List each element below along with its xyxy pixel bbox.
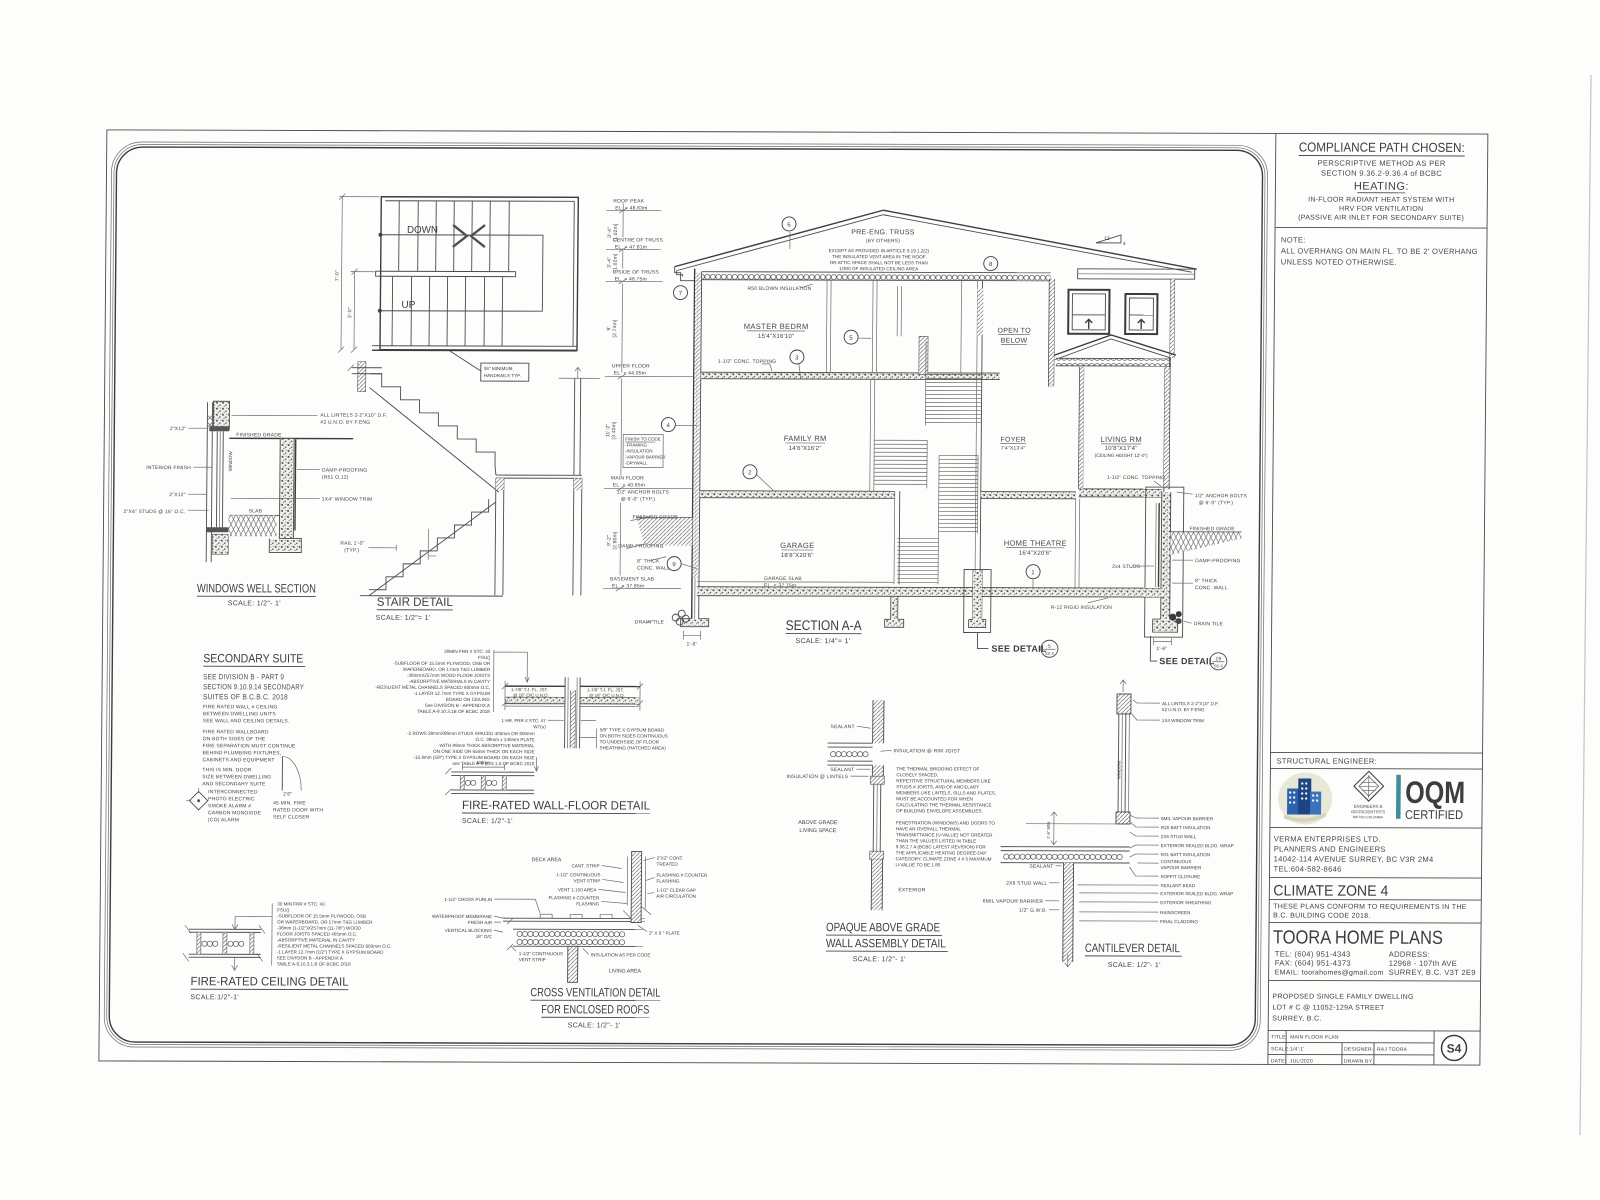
- svg-text:SEALANT: SEALANT: [830, 767, 854, 773]
- svg-text:IN-FLOOR RADIANT HEAT SYSTEM W: IN-FLOOR RADIANT HEAT SYSTEM WITH: [1308, 197, 1454, 204]
- svg-text:WALL ASSEMBLY DETAIL: WALL ASSEMBLY DETAIL: [826, 936, 946, 950]
- svg-text:ALL LINTELS 2-2"X10" D.F.: ALL LINTELS 2-2"X10" D.F.: [320, 413, 387, 419]
- svg-text:DAMP-PROOFING: DAMP-PROOFING: [618, 543, 663, 549]
- svg-text:TRANSMITTANCE (U-VALUE) NOT GR: TRANSMITTANCE (U-VALUE) NOT GREATER: [896, 832, 993, 837]
- svg-text:9.36.2.7 A (BCBC LATEST REVISI: 9.36.2.7 A (BCBC LATEST REVISION) FOR: [896, 844, 987, 849]
- svg-text:INTERCONNECTED: INTERCONNECTED: [208, 789, 258, 795]
- svg-text:5: 5: [849, 336, 853, 342]
- svg-text:FLASHING # COUNTER: FLASHING # COUNTER: [656, 873, 708, 878]
- svg-text:VENT STRIP: VENT STRIP: [519, 957, 546, 962]
- svg-text:LIVING AREA: LIVING AREA: [609, 968, 642, 974]
- svg-text:@ 16" O/C U.N.O.: @ 16" O/C U.N.O.: [589, 693, 625, 698]
- svg-text:PHOTO ELECTRIC: PHOTO ELECTRIC: [208, 796, 255, 802]
- svg-text:-1 LAYER 12.7mm TYPE X GYPSUM: -1 LAYER 12.7mm TYPE X GYPSUM: [413, 691, 490, 696]
- svg-text:18" O/C: 18" O/C: [476, 934, 493, 939]
- svg-text:DESIGNER:: DESIGNER:: [1344, 1047, 1373, 1053]
- svg-text:STRUCTURAL ENGINEER:: STRUCTURAL ENGINEER:: [1276, 756, 1377, 765]
- svg-text:SURREY, B.C.: SURREY, B.C.: [1272, 1015, 1321, 1022]
- svg-text:PROPOSED SINGLE FAMILY DWELLIN: PROPOSED SINGLE FAMILY DWELLING: [1272, 993, 1413, 1000]
- svg-text:ON ONE SIDE OR 65mm THICK ON E: ON ONE SIDE OR 65mm THICK ON EACH SIDE: [433, 749, 535, 754]
- svg-text:EL. = 44.05m: EL. = 44.05m: [614, 370, 646, 376]
- svg-text:INSULATION AS PER CODE: INSULATION AS PER CODE: [591, 952, 651, 957]
- svg-text:THE INSULATED VENT AREA IN THE: THE INSULATED VENT AREA IN THE ROOF: [832, 254, 926, 259]
- svg-text:16'4"X20'6": 16'4"X20'6": [1019, 551, 1052, 557]
- svg-text:THE THERMAL BRIDGING EFFECT OF: THE THERMAL BRIDGING EFFECT OF: [896, 766, 979, 771]
- svg-text:FIRE SEPARATION MUST CONTINUE: FIRE SEPARATION MUST CONTINUE: [203, 743, 297, 749]
- svg-text:OQM: OQM: [1405, 775, 1465, 810]
- svg-text:[3.40m]: [3.40m]: [611, 421, 617, 440]
- svg-text:DRAIN TILE: DRAIN TILE: [1194, 621, 1224, 627]
- svg-text:1'-6" MIN.: 1'-6" MIN.: [1046, 821, 1051, 839]
- svg-text:FIRE-RATED CEILING DETAIL: FIRE-RATED CEILING DETAIL: [190, 974, 348, 988]
- svg-text:2: 2: [748, 470, 752, 476]
- svg-text:FINISHED GRADE: FINISHED GRADE: [633, 515, 679, 521]
- svg-text:CALCULATING THE THERMAL RESIST: CALCULATING THE THERMAL RESISTANCE: [896, 802, 992, 807]
- svg-text:O.C. 38mm x 140mm PLATE: O.C. 38mm x 140mm PLATE: [475, 737, 534, 742]
- svg-text:COMPLIANCE PATH CHOSEN:: COMPLIANCE PATH CHOSEN:: [1299, 139, 1465, 154]
- svg-text:ENGINEERS &: ENGINEERS &: [1354, 804, 1383, 809]
- svg-text:-VAPOUR BARRIER: -VAPOUR BARRIER: [625, 454, 665, 459]
- svg-text:CANT. STRIP: CANT. STRIP: [571, 863, 599, 868]
- svg-text:DOWN: DOWN: [407, 225, 438, 236]
- svg-text:SD-3: SD-3: [1214, 664, 1223, 668]
- svg-text:MEMBERS LIKE LINTELS, SILLS AN: MEMBERS LIKE LINTELS, SILLS AND PLATES,: [896, 790, 996, 795]
- svg-text:SCALE:1/2"-1': SCALE:1/2"-1': [190, 994, 239, 1001]
- svg-text:1-1/2" CONC. TOPPING: 1-1/2" CONC. TOPPING: [1107, 475, 1165, 481]
- svg-text:FINISHED GRADE: FINISHED GRADE: [236, 432, 282, 438]
- svg-text:-INSULATION: -INSULATION: [625, 448, 653, 453]
- svg-text:[2.74m]: [2.74m]: [612, 319, 618, 338]
- svg-text:REPETITIVE STRUCTURAL MEMBERS: REPETITIVE STRUCTURAL MEMBERS LIKE: [896, 778, 991, 783]
- svg-text:DRAIN TILE: DRAIN TILE: [635, 620, 665, 626]
- svg-text:FINISH TO CODE: FINISH TO CODE: [625, 436, 661, 441]
- svg-text:THAN THE VALUES LISTED IN TABL: THAN THE VALUES LISTED IN TABLE: [896, 838, 977, 843]
- svg-text:1/2" ANCHOR BOLTS: 1/2" ANCHOR BOLTS: [1195, 493, 1248, 499]
- svg-text:-FRAMING: -FRAMING: [625, 442, 647, 447]
- svg-text:30MIN FRR # STC: 43: 30MIN FRR # STC: 43: [444, 649, 491, 654]
- svg-text:RAIL 1'-0": RAIL 1'-0": [340, 541, 364, 547]
- svg-text:EXTERIOR SEALED BLDG. WRAP: EXTERIOR SEALED BLDG. WRAP: [1160, 891, 1233, 896]
- svg-text:HRV FOR VENTILATION: HRV FOR VENTILATION: [1339, 206, 1423, 213]
- svg-text:3'-0": 3'-0": [347, 307, 353, 318]
- svg-text:MAIN FLOOR: MAIN FLOOR: [611, 475, 644, 481]
- svg-text:EXCEPT AS PROVIDED IN ARTICLE: EXCEPT AS PROVIDED IN ARTICLE 9.19.1.2(2…: [829, 248, 930, 253]
- svg-text:ALL OVERHANG ON MAIN FL. TO BE: ALL OVERHANG ON MAIN FL. TO BE 2' OVERHA…: [1281, 246, 1478, 256]
- svg-text:12968 - 107th AVE: 12968 - 107th AVE: [1389, 959, 1457, 968]
- svg-text:TITLE:: TITLE:: [1271, 1034, 1287, 1040]
- svg-text:[2.80m]: [2.80m]: [612, 531, 618, 550]
- svg-text:TABLE A-9.10.3.1B OF BCBC 2018: TABLE A-9.10.3.1B OF BCBC 2018: [417, 709, 490, 714]
- svg-text:CENTRE OF TRUSS: CENTRE OF TRUSS: [613, 237, 664, 243]
- svg-text:DRAWN BY: DRAWN BY: [1344, 1059, 1373, 1065]
- svg-text:5: 5: [1048, 644, 1051, 650]
- svg-text:BETWEEN DWELLING UNITS: BETWEEN DWELLING UNITS: [203, 711, 277, 717]
- svg-text:[1.02m]: [1.02m]: [613, 223, 619, 242]
- svg-text:FINISHED GRADE: FINISHED GRADE: [1189, 526, 1235, 532]
- svg-text:CROSS VENTILATION DETAIL: CROSS VENTILATION DETAIL: [530, 985, 660, 999]
- svg-text:-1 LAYER 12.7mm (1/2") TYPE X: -1 LAYER 12.7mm (1/2") TYPE X GYPSUM BOA…: [277, 949, 384, 954]
- svg-text:6MIL VAPOUR BARRIER: 6MIL VAPOUR BARRIER: [1161, 816, 1214, 821]
- svg-text:STAIR DETAIL: STAIR DETAIL: [377, 595, 453, 609]
- svg-text:400mm: 400mm: [476, 760, 491, 765]
- svg-text:8" THICK: 8" THICK: [1195, 578, 1218, 584]
- svg-text:FRESH AIR: FRESH AIR: [468, 920, 493, 925]
- svg-text:FOYER: FOYER: [1000, 437, 1026, 444]
- svg-text:@ 6'-0" (TYP.): @ 6'-0" (TYP.): [1199, 500, 1234, 506]
- svg-text:12: 12: [1104, 236, 1110, 242]
- svg-text:-38mmX257mm WOOD FLOOR JOISTS: -38mmX257mm WOOD FLOOR JOISTS: [407, 673, 490, 678]
- svg-text:SEE DIVISION B - APPENDIX A: SEE DIVISION B - APPENDIX A: [277, 955, 344, 960]
- svg-text:8" THICK: 8" THICK: [637, 559, 660, 565]
- svg-text:1-1/2" CLEAR GAP: 1-1/2" CLEAR GAP: [656, 888, 696, 893]
- svg-text:36" MINIMUM: 36" MINIMUM: [484, 366, 513, 371]
- svg-text:INSULATION @ LINTELS: INSULATION @ LINTELS: [787, 774, 849, 780]
- svg-text:LIVING RM: LIVING RM: [1100, 435, 1142, 444]
- svg-text:18'8"X20'6": 18'8"X20'6": [781, 553, 814, 559]
- svg-text:SEE WALL AND CEILING DETAILS.: SEE WALL AND CEILING DETAILS.: [203, 718, 290, 724]
- svg-text:HOME THEATRE: HOME THEATRE: [1004, 539, 1067, 548]
- svg-text:2"X2" CONT.: 2"X2" CONT.: [657, 856, 684, 861]
- svg-text:FLASHING: FLASHING: [656, 879, 679, 884]
- svg-text:SCALE: 1/4"= 1': SCALE: 1/4"= 1': [795, 638, 850, 645]
- svg-text:PERSCRIPTIVE METHOD AS PER: PERSCRIPTIVE METHOD AS PER: [1318, 159, 1446, 168]
- svg-text:ROOF PEAK: ROOF PEAK: [613, 198, 644, 204]
- svg-text:CARBON MONOXIDE: CARBON MONOXIDE: [208, 810, 262, 816]
- svg-text:MASTER BEDRM: MASTER BEDRM: [744, 322, 809, 331]
- svg-text:(R51 O.12): (R51 O.12): [322, 475, 349, 481]
- svg-text:@ 16" O/C U.N.O.: @ 16" O/C U.N.O.: [513, 693, 549, 698]
- svg-text:7'-0": 7'-0": [335, 270, 341, 281]
- svg-text:CONTINUOUS: CONTINUOUS: [1161, 859, 1192, 864]
- svg-text:AND SECONDARY SUITE: AND SECONDARY SUITE: [202, 781, 266, 787]
- svg-text:CATEGORY. CLIMATE ZONE 4 # 5 M: CATEGORY. CLIMATE ZONE 4 # 5 MAXIMUM: [896, 856, 992, 861]
- svg-text:SIZE BETWEEN DWELLING: SIZE BETWEEN DWELLING: [202, 774, 271, 780]
- svg-text:SEALANT: SEALANT: [831, 724, 855, 730]
- svg-text:TEL: (604) 951-4343: TEL: (604) 951-4343: [1275, 949, 1351, 958]
- svg-text:U-VALUE TO BE 1.80: U-VALUE TO BE 1.80: [896, 862, 941, 867]
- svg-text:2'6": 2'6": [283, 791, 292, 797]
- svg-text:OR WAFERBOARD, OR 17mm T&G LUM: OR WAFERBOARD, OR 17mm T&G LUMBER: [277, 919, 373, 924]
- svg-text:CONC. WALL: CONC. WALL: [637, 566, 670, 572]
- svg-text:WAFERBOARD, OR 17mm T&G LUMBER: WAFERBOARD, OR 17mm T&G LUMBER: [403, 667, 491, 672]
- svg-text:SD-3: SD-3: [1045, 652, 1054, 656]
- svg-text:TREATED: TREATED: [657, 862, 679, 867]
- svg-text:SMOKE ALARM #: SMOKE ALARM #: [208, 803, 251, 809]
- svg-text:1-7/8" T.J. FL. JST.: 1-7/8" T.J. FL. JST.: [587, 687, 624, 692]
- svg-text:(BY OTHERS): (BY OTHERS): [866, 238, 901, 244]
- svg-text:FLASHING # COUNTER: FLASHING # COUNTER: [548, 895, 600, 900]
- svg-text:VENT 1:150 AREA: VENT 1:150 AREA: [558, 887, 597, 892]
- svg-text:OR ATTIC SPACE SHALL NOT BE LE: OR ATTIC SPACE SHALL NOT BE LESS THAN: [830, 260, 928, 265]
- svg-text:-2 ROWS 38mmX89mm STUDS SPACED: -2 ROWS 38mmX89mm STUDS SPACED 400mm OR …: [407, 731, 535, 736]
- svg-text:SEALANT BEAD: SEALANT BEAD: [1160, 883, 1195, 888]
- svg-text:SOFFIT CLOSURE: SOFFIT CLOSURE: [1160, 874, 1200, 879]
- svg-text:-SUBFLOOR OF 15.5mm PLYWOOD, O: -SUBFLOOR OF 15.5mm PLYWOOD, OSB: [277, 913, 366, 918]
- svg-text:JUL/2020: JUL/2020: [1290, 1058, 1313, 1064]
- svg-text:CABINETS AND EQUIPMENT: CABINETS AND EQUIPMENT: [202, 757, 274, 763]
- svg-text:5/8" TYPE X GYPSUM BOARD: 5/8" TYPE X GYPSUM BOARD: [600, 727, 665, 732]
- svg-text:2X6 STUD WALL: 2X6 STUD WALL: [1161, 834, 1197, 839]
- svg-text:SCALE: 1/2"- 1': SCALE: 1/2"- 1': [1108, 962, 1161, 969]
- svg-text:AIR CIRCULATION: AIR CIRCULATION: [656, 894, 696, 899]
- svg-text:SLAB: SLAB: [249, 508, 263, 514]
- svg-text:FLOOR JOISTS SPACED 405mm O.C.: FLOOR JOISTS SPACED 405mm O.C.: [277, 931, 357, 936]
- svg-text:GARAGE SLAB: GARAGE SLAB: [764, 576, 802, 582]
- svg-text:8: 8: [989, 262, 993, 268]
- svg-text:THESE PLANS CONFORM TO REQUIRE: THESE PLANS CONFORM TO REQUIREMENTS IN T…: [1273, 903, 1467, 911]
- svg-text:THE APPLICABLE HEATING DEGREE-: THE APPLICABLE HEATING DEGREE-DAY: [896, 850, 987, 855]
- svg-text:2x4 STUDS: 2x4 STUDS: [1112, 564, 1141, 570]
- svg-text:FIRE-RATED WALL-FLOOR DETAIL: FIRE-RATED WALL-FLOOR DETAIL: [462, 798, 650, 813]
- svg-text:14'6"X16'2": 14'6"X16'2": [789, 446, 822, 452]
- svg-text:FSU(): FSU(): [277, 907, 290, 912]
- svg-text:(CEILING HEIGHT 12'-0"): (CEILING HEIGHT 12'-0"): [1095, 453, 1148, 458]
- svg-text:4: 4: [1123, 241, 1126, 247]
- svg-text:-DRYWALL: -DRYWALL: [625, 460, 648, 465]
- svg-text:B.C. BUILDING CODE 2018.: B.C. BUILDING CODE 2018.: [1273, 912, 1371, 919]
- svg-text:STUDS # JOISTS, AND OF ANCILLA: STUDS # JOISTS, AND OF ANCILLARY: [896, 784, 979, 789]
- svg-text:(TYP.): (TYP.): [344, 548, 359, 554]
- svg-text:SCALE: 1/2"- 1': SCALE: 1/2"- 1': [853, 956, 906, 963]
- svg-text:VERMA ENTERPRISES LTD.: VERMA ENTERPRISES LTD.: [1274, 834, 1381, 843]
- svg-text:FIRE RATED WALLBOARD: FIRE RATED WALLBOARD: [203, 729, 269, 735]
- svg-text:1/300 OF INSULATED CEILING ARE: 1/300 OF INSULATED CEILING AREA: [839, 266, 919, 271]
- svg-text:1'-6": 1'-6": [1156, 646, 1167, 652]
- svg-text:1'-6": 1'-6": [686, 642, 697, 648]
- svg-text:TABLE A-9.10.3.1.B OF BCBC 201: TABLE A-9.10.3.1.B OF BCBC 2018: [277, 961, 351, 966]
- svg-text:SUITES OF B.C.B.C. 2018: SUITES OF B.C.B.C. 2018: [203, 692, 288, 701]
- svg-text:MUST BE ACCOUNTED FOR WHEN: MUST BE ACCOUNTED FOR WHEN: [896, 796, 973, 801]
- svg-text:SCALE: 1/2"= 1': SCALE: 1/2"= 1': [376, 615, 431, 622]
- svg-text:SECTION 9.36.2-9.36.4 of BCBC: SECTION 9.36.2-9.36.4 of BCBC: [1321, 169, 1442, 178]
- svg-text:WINDOW: WINDOW: [1116, 761, 1121, 779]
- svg-text:FINAL CLADDING: FINAL CLADDING: [1160, 919, 1198, 924]
- svg-text:OPAQUE ABOVE GRADE: OPAQUE ABOVE GRADE: [826, 920, 940, 934]
- svg-text:DAMP-PROOFING: DAMP-PROOFING: [322, 468, 367, 474]
- svg-text:BOARD ON CEILING: BOARD ON CEILING: [446, 697, 491, 702]
- svg-text:BRITISH COLUMBIA: BRITISH COLUMBIA: [1353, 815, 1384, 819]
- svg-text:HEATING:: HEATING:: [1354, 181, 1409, 193]
- svg-text:3: 3: [795, 355, 799, 361]
- svg-text:EL. = 40.65m: EL. = 40.65m: [613, 482, 645, 488]
- svg-text:ON BOTH SIDES OF THE: ON BOTH SIDES OF THE: [203, 736, 266, 742]
- svg-text:BASEMENT SLAB: BASEMENT SLAB: [610, 576, 655, 582]
- svg-text:CLIMATE ZONE 4: CLIMATE ZONE 4: [1273, 882, 1388, 899]
- svg-text:EMAIL: toorahomes@gmail.com: EMAIL: toorahomes@gmail.com: [1275, 969, 1384, 976]
- svg-text:WINDOWS WELL SECTION: WINDOWS WELL SECTION: [197, 581, 316, 595]
- svg-text:CLOSELY SPACED,: CLOSELY SPACED,: [896, 772, 938, 777]
- svg-text:2"X4" STUDS @ 16" O.C.: 2"X4" STUDS @ 16" O.C.: [124, 509, 186, 515]
- svg-text:FAX: (604) 951-4373: FAX: (604) 951-4373: [1275, 958, 1351, 967]
- svg-text:GEOSCIENTISTS: GEOSCIENTISTS: [1351, 809, 1385, 814]
- svg-text:R50 BLOWN INSULATION: R50 BLOWN INSULATION: [747, 286, 811, 292]
- svg-text:CERTIFIED: CERTIFIED: [1405, 808, 1463, 822]
- svg-text:[1.02m]: [1.02m]: [613, 253, 619, 272]
- svg-text:1-1/2" CONTINUOUS: 1-1/2" CONTINUOUS: [519, 951, 563, 956]
- svg-text:R-12 RIGID INSULATION: R-12 RIGID INSULATION: [1051, 605, 1113, 611]
- svg-text:VENT STRIP: VENT STRIP: [573, 878, 600, 883]
- svg-text:BEHIND PLUMBING FIXTURES,: BEHIND PLUMBING FIXTURES,: [202, 750, 281, 756]
- svg-text:-SUBFLOOR OF 15.5mm PLYWOOD, O: -SUBFLOOR OF 15.5mm PLYWOOD, OSB OR: [393, 661, 491, 666]
- svg-text:1/2" G.W.B.: 1/2" G.W.B.: [1019, 908, 1047, 914]
- svg-text:see TABLE A-9.10.3.1 A OF BCBC: see TABLE A-9.10.3.1 A OF BCBC 2018: [452, 761, 535, 766]
- svg-text:EXTERIOR: EXTERIOR: [898, 887, 925, 893]
- svg-text:WATERPROOF MEMBRANE: WATERPROOF MEMBRANE: [432, 914, 492, 919]
- svg-text:RATED DOOR WITH: RATED DOOR WITH: [273, 807, 323, 813]
- svg-text:RAJ TOORA: RAJ TOORA: [1377, 1047, 1408, 1053]
- svg-text:FENESTRATION (WINDOWS) AND DOO: FENESTRATION (WINDOWS) AND DOORS TO: [896, 820, 995, 825]
- svg-text:WINDOW: WINDOW: [228, 451, 233, 472]
- svg-text:R31 BATT INSULATION: R31 BATT INSULATION: [1161, 852, 1211, 857]
- svg-text:S4: S4: [1447, 1041, 1462, 1055]
- svg-text:(CO) ALARM: (CO) ALARM: [208, 817, 239, 823]
- svg-text:(PASSIVE AIR INLET FOR SECONDA: (PASSIVE AIR INLET FOR SECONDARY SUITE): [1298, 214, 1464, 221]
- svg-text:INTERIOR FINISH: INTERIOR FINISH: [146, 465, 191, 471]
- svg-text:DATE:: DATE:: [1271, 1058, 1286, 1064]
- svg-text:BELOW: BELOW: [1001, 338, 1028, 345]
- svg-text:@ 6'-0" (TYP.): @ 6'-0" (TYP.): [621, 496, 656, 502]
- svg-text:SCALE: 1/2"-1': SCALE: 1/2"-1': [462, 818, 513, 825]
- svg-text:6: 6: [787, 222, 791, 228]
- svg-text:W7(u): W7(u): [533, 724, 546, 729]
- svg-text:HAVE AN OVERALL THERMAL: HAVE AN OVERALL THERMAL: [896, 826, 962, 831]
- svg-text:10'8"X17'4": 10'8"X17'4": [1105, 446, 1138, 452]
- svg-text:ON BOTH SIDES CONTINUOUS: ON BOTH SIDES CONTINUOUS: [600, 733, 668, 738]
- svg-text:2" X 6 " PLATE: 2" X 6 " PLATE: [649, 931, 680, 936]
- svg-text:OPEN TO: OPEN TO: [997, 328, 1031, 335]
- svg-text:30 MIN FRR # STC: 43: 30 MIN FRR # STC: 43: [277, 901, 325, 906]
- svg-text:FLASHING: FLASHING: [576, 901, 599, 906]
- svg-text:-ABSORPTIVE MATERIALS IN CAVIT: -ABSORPTIVE MATERIALS IN CAVITY: [409, 679, 490, 684]
- svg-text:EL. = 37.75m: EL. = 37.75m: [764, 583, 796, 589]
- svg-text:1: 1: [1031, 570, 1035, 576]
- svg-text:RAINSCREEN: RAINSCREEN: [1160, 910, 1190, 915]
- svg-text:CONC. WALL: CONC. WALL: [1195, 585, 1228, 591]
- svg-text:EXTERIOR SEALED BLDG. WRAP: EXTERIOR SEALED BLDG. WRAP: [1161, 843, 1234, 848]
- svg-text:SCALE: 1/2"- 1': SCALE: 1/2"- 1': [228, 600, 281, 607]
- svg-text:SECONDARY SUITE: SECONDARY SUITE: [203, 651, 303, 665]
- svg-text:TEL:604-582-8646: TEL:604-582-8646: [1274, 864, 1342, 873]
- svg-text:INSULATION @ RIM JOIST: INSULATION @ RIM JOIST: [894, 748, 961, 754]
- svg-text:2"X12": 2"X12": [169, 492, 186, 498]
- svg-text:FSU(): FSU(): [478, 655, 491, 660]
- svg-text:THIS IS MIN. DOOR: THIS IS MIN. DOOR: [202, 767, 251, 773]
- svg-text:TOORA HOME PLANS: TOORA HOME PLANS: [1273, 927, 1443, 949]
- svg-text:SCALE: 1/2"- 1': SCALE: 1/2"- 1': [568, 1022, 621, 1029]
- svg-text:2X6 STUD WALL: 2X6 STUD WALL: [1006, 881, 1047, 887]
- svg-text:MAIN FLOOR PLAN: MAIN FLOOR PLAN: [1290, 1034, 1339, 1040]
- svg-text:FAMILY RM: FAMILY RM: [784, 434, 827, 443]
- svg-text:ALL LINTELS 2-2"X10" D.F.: ALL LINTELS 2-2"X10" D.F.: [1162, 701, 1219, 706]
- svg-text:-RESILIENT METAL CHANNELS SPAC: -RESILIENT METAL CHANNELS SPACED 600mm O…: [277, 943, 392, 948]
- svg-text:-15.9mm (5/8") TYPE X GYPSUM B: -15.9mm (5/8") TYPE X GYPSUM BOARD ON EA…: [413, 755, 534, 760]
- svg-text:U/SIDE OF TRUSS: U/SIDE OF TRUSS: [613, 269, 660, 275]
- svg-text:1/2" ANCHOR BOLTS: 1/2" ANCHOR BOLTS: [617, 489, 670, 495]
- svg-text:UNLESS NOTED OTHERWISE.: UNLESS NOTED OTHERWISE.: [1281, 257, 1397, 266]
- svg-text:SEE DIVISION B - PART 9: SEE DIVISION B - PART 9: [203, 672, 284, 681]
- svg-text:45 MIN. FIRE: 45 MIN. FIRE: [273, 800, 306, 806]
- svg-text:PRE-ENG. TRUSS: PRE-ENG. TRUSS: [851, 229, 915, 236]
- svg-text:CANTILEVER DETAIL: CANTILEVER DETAIL: [1085, 941, 1180, 955]
- svg-text:7: 7: [679, 291, 683, 297]
- svg-text:1-1/2" CROSS PURLIN: 1-1/2" CROSS PURLIN: [444, 897, 492, 902]
- svg-text:LIVING SPACE: LIVING SPACE: [799, 828, 837, 834]
- svg-text:19: 19: [1216, 656, 1222, 662]
- svg-text:14042-114 AVENUE SURREY, BC V3: 14042-114 AVENUE SURREY, BC V3R 2M4: [1274, 854, 1434, 863]
- svg-text:#2 U.N.O. BY F.ENG: #2 U.N.O. BY F.ENG: [1162, 707, 1205, 712]
- svg-text:FIRE RATED WALL # CEILING: FIRE RATED WALL # CEILING: [203, 704, 278, 710]
- svg-text:SEE DETAIL: SEE DETAIL: [1159, 656, 1215, 666]
- svg-text:OF BUILDING ENVELOPE ASSEMBLIE: OF BUILDING ENVELOPE ASSEMBLIES.: [896, 808, 983, 813]
- svg-text:15'4"X16'10": 15'4"X16'10": [758, 334, 794, 340]
- svg-text:-RESILIENT METAL CHANNELS SPAC: -RESILIENT METAL CHANNELS SPACED 600mm O…: [375, 685, 490, 690]
- svg-text:1X4 WINDOW TRIM: 1X4 WINDOW TRIM: [1162, 718, 1204, 723]
- svg-text:SURREY, B.C. V3T 2E9: SURREY, B.C. V3T 2E9: [1389, 968, 1476, 977]
- svg-text:SECTION A-A: SECTION A-A: [786, 617, 863, 633]
- svg-text:UP: UP: [401, 300, 415, 311]
- svg-text:HANDRAILS TYP.: HANDRAILS TYP.: [484, 373, 521, 378]
- svg-text:1X4" WINDOW TRIM: 1X4" WINDOW TRIM: [322, 497, 373, 503]
- svg-text:2"X12": 2"X12": [170, 426, 187, 432]
- svg-text:-38mm (1-1/2")X257mm (11-7/8"): -38mm (1-1/2")X257mm (11-7/8") WOOD: [277, 925, 362, 930]
- svg-text:4: 4: [667, 423, 671, 429]
- svg-text:ABOVE GRADE: ABOVE GRADE: [798, 820, 838, 826]
- svg-text:1-7/8" T.J. FL. JST.: 1-7/8" T.J. FL. JST.: [511, 687, 548, 692]
- svg-text:SHEATHING (HATCHED AREA): SHEATHING (HATCHED AREA): [600, 745, 667, 750]
- svg-text:SEE DETAIL: SEE DETAIL: [991, 644, 1047, 654]
- svg-text:DECK AREA: DECK AREA: [532, 857, 562, 863]
- svg-text:LOT # C @ 11052-129A STREET: LOT # C @ 11052-129A STREET: [1272, 1004, 1385, 1011]
- svg-text:R20 BATT INSULATION: R20 BATT INSULATION: [1161, 825, 1211, 830]
- svg-text:FOR ENCLOSED ROOFS: FOR ENCLOSED ROOFS: [541, 1002, 649, 1016]
- svg-text:VERTICAL BLOCKING: VERTICAL BLOCKING: [445, 928, 493, 933]
- svg-text:SCALE:: SCALE:: [1271, 1046, 1290, 1052]
- svg-text:1 HR. FRR # STC: 47: 1 HR. FRR # STC: 47: [501, 718, 546, 723]
- svg-text:6MIL VAPOUR BARRIER: 6MIL VAPOUR BARRIER: [983, 899, 1044, 905]
- svg-text:EXTERIOR SHEATHING: EXTERIOR SHEATHING: [1160, 900, 1212, 905]
- svg-text:1-1/2" CONTINUOUS: 1-1/2" CONTINUOUS: [556, 872, 600, 877]
- svg-text:VAPOUR BARRIER: VAPOUR BARRIER: [1161, 865, 1202, 870]
- svg-text:-ABSORPTIVE MATERIAL IN CAVITY: -ABSORPTIVE MATERIAL IN CAVITY: [277, 937, 355, 942]
- svg-text:SELF CLOSER: SELF CLOSER: [273, 814, 310, 820]
- svg-text:7'4"X13'4": 7'4"X13'4": [1001, 446, 1026, 452]
- svg-text:UPPER FLOOR: UPPER FLOOR: [612, 363, 650, 369]
- svg-text:GARAGE: GARAGE: [780, 541, 814, 550]
- svg-text:ADDRESS:: ADDRESS:: [1389, 950, 1430, 959]
- svg-text:NOTE:: NOTE:: [1281, 235, 1306, 244]
- svg-text:See DIVISION B - APPENDIX A: See DIVISION B - APPENDIX A: [425, 703, 491, 708]
- svg-text:SECTION 9.10.9.14 SECONDARY: SECTION 9.10.9.14 SECONDARY: [203, 682, 304, 691]
- svg-text:DAMP-PROOFING: DAMP-PROOFING: [1195, 558, 1240, 564]
- svg-text:TO UNDERSIDE OF FLOOR: TO UNDERSIDE OF FLOOR: [600, 739, 660, 744]
- svg-text:PLANNERS AND ENGINEERS: PLANNERS AND ENGINEERS: [1274, 844, 1386, 853]
- svg-text:#2 U.N.O. BY F.ENG: #2 U.N.O. BY F.ENG: [320, 420, 370, 426]
- svg-text:SEALANT: SEALANT: [1029, 864, 1053, 870]
- svg-text:9: 9: [672, 562, 676, 568]
- svg-text:1/4':1': 1/4':1': [1290, 1046, 1304, 1052]
- svg-text:-WITH 89mm THICK ABSORPTIVE MA: -WITH 89mm THICK ABSORPTIVE MATERIAL: [438, 743, 535, 748]
